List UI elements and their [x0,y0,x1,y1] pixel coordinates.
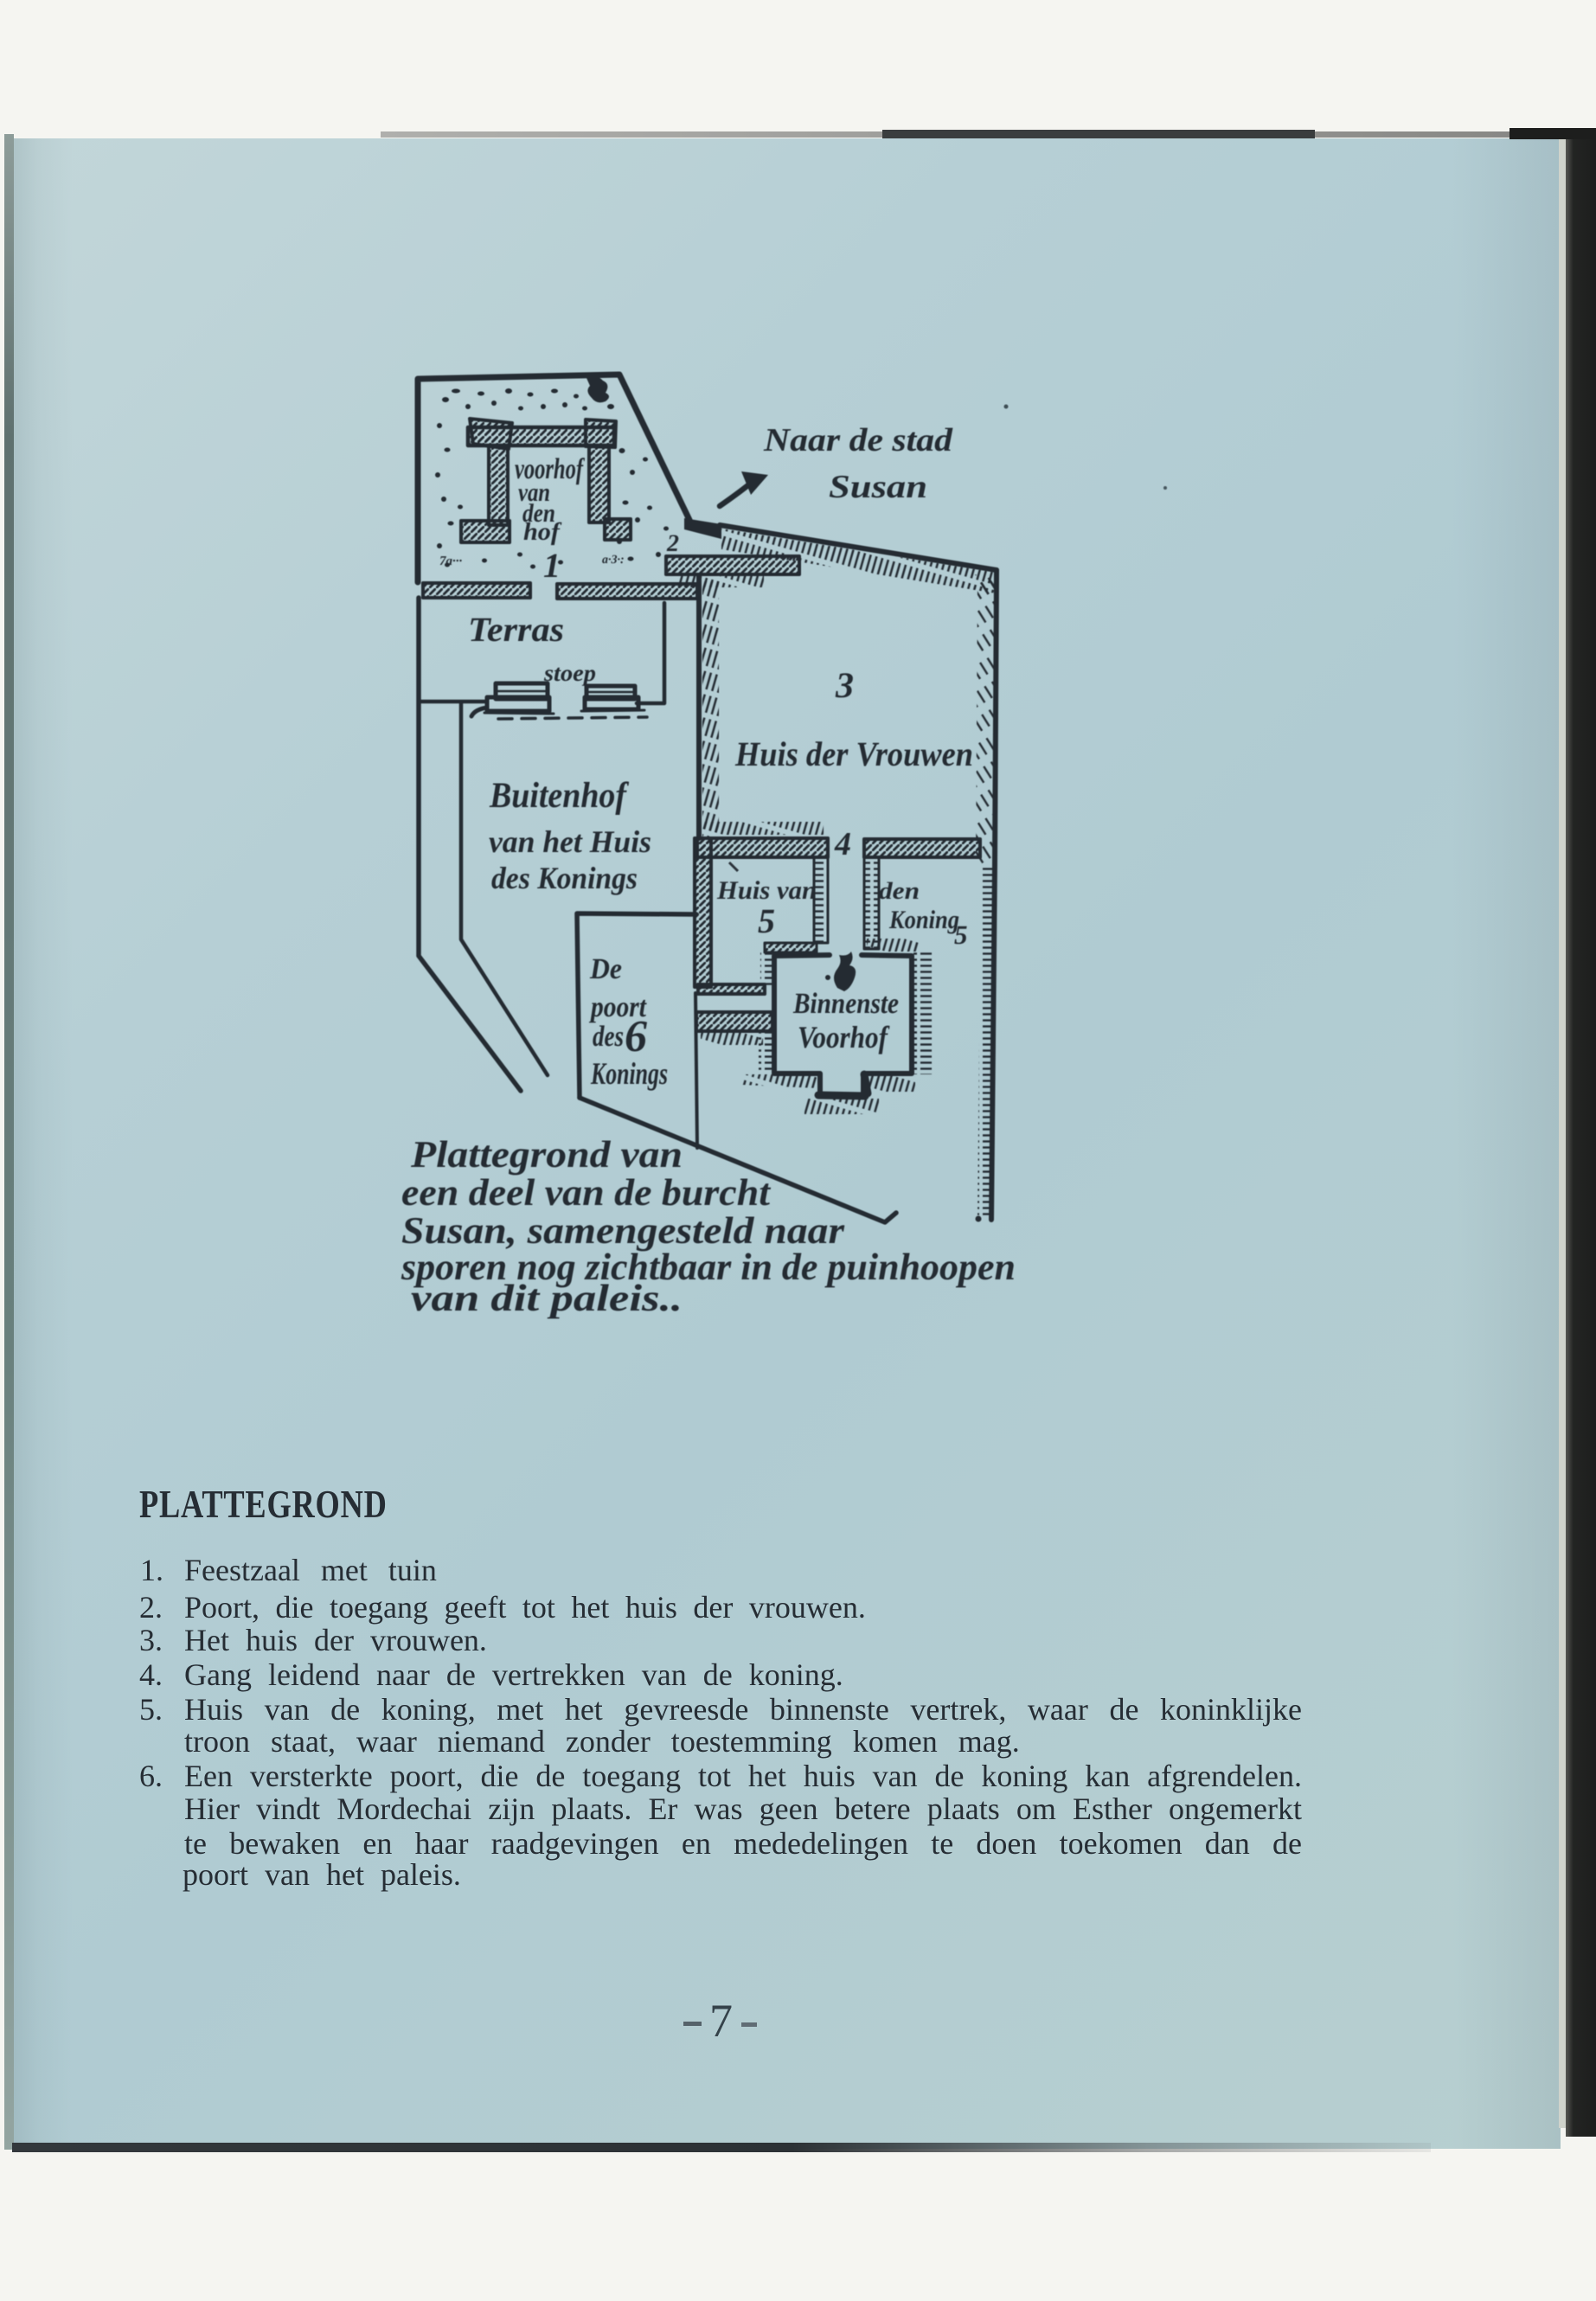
svg-text:5: 5 [758,901,775,940]
svg-text:5: 5 [954,920,968,950]
svg-text:a·3·:: a·3·: [602,554,625,567]
svg-text:Buitenhof: Buitenhof [489,776,630,816]
svg-text:De: De [589,953,622,985]
svg-text:des Konings: des Konings [491,861,638,895]
svg-text:3: 3 [835,666,854,706]
svg-text:Terras: Terras [468,610,564,649]
svg-text:7a···: 7a··· [439,554,463,568]
svg-text:Susan: Susan [829,469,927,505]
svg-text:stoep: stoep [543,660,596,686]
svg-text:Plattegrond van: Plattegrond van [410,1133,683,1176]
svg-text:hof: hof [523,518,562,546]
svg-text:Voorhof: Voorhof [798,1020,890,1054]
svg-text:Naar de stad: Naar de stad [763,422,953,458]
svg-text:1: 1 [543,546,561,585]
svg-text:6: 6 [625,1012,647,1061]
svg-text:Binnenste: Binnenste [792,988,899,1020]
svg-text:Huis der Vrouwen: Huis der Vrouwen [734,734,973,773]
svg-text:een deel van de burcht: een deel van de burcht [401,1171,772,1214]
svg-text:Konings: Konings [590,1056,668,1091]
svg-text:van dit paleis..: van dit paleis.. [411,1277,683,1319]
svg-text:4: 4 [834,826,851,862]
svg-text:den: den [879,878,920,905]
svg-text:des: des [593,1021,624,1053]
svg-text:2: 2 [666,530,679,557]
svg-text:van het Huis: van het Huis [489,824,651,859]
svg-text:Koning: Koning [888,906,959,934]
